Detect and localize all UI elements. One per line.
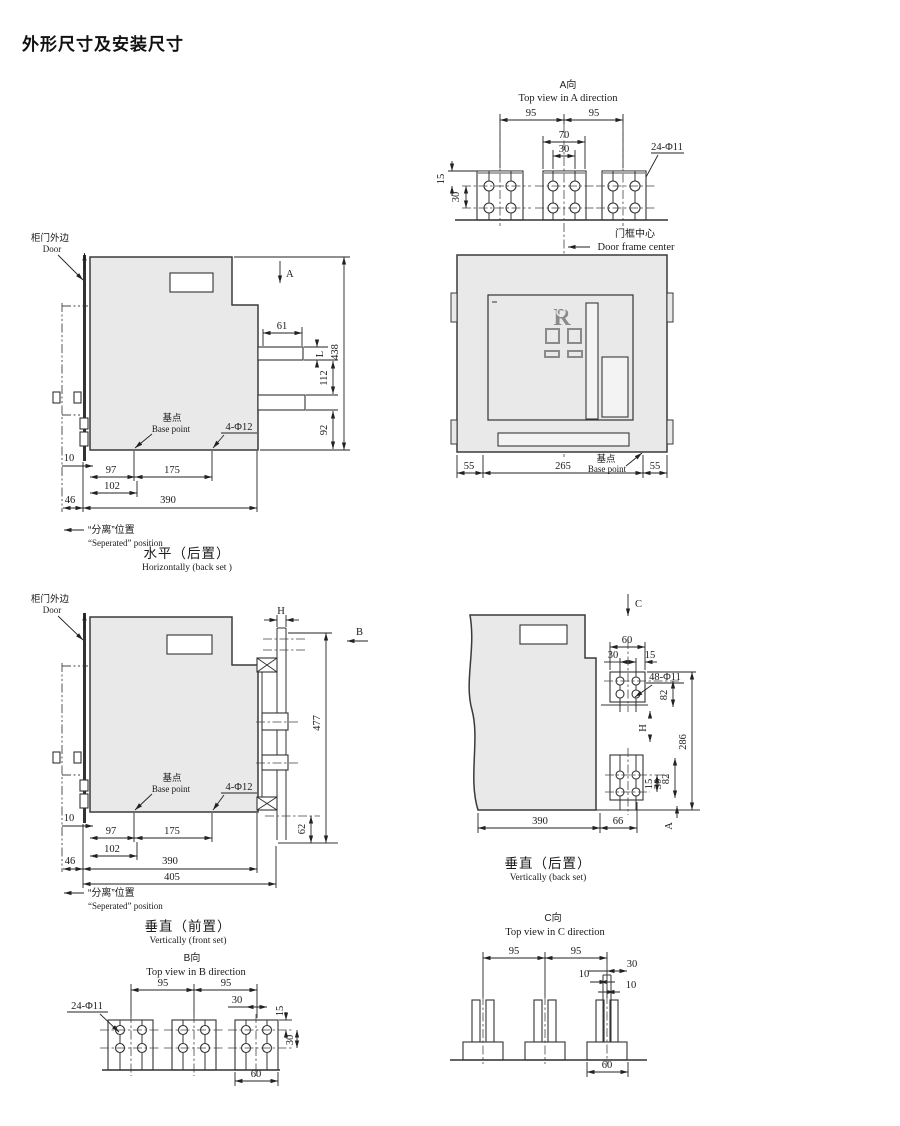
dim-30-rot: 30 <box>285 1035 296 1046</box>
dim-L: L <box>315 351 326 357</box>
side-window <box>520 625 567 644</box>
dim-438: 438 <box>330 344 341 360</box>
door-label-cn: 柜门外边 <box>31 232 70 244</box>
terminal-block-a-right <box>596 171 655 220</box>
dimension-drawing: A向 Top view in A direction 95 95 70 30 2… <box>0 0 900 1126</box>
dim-265: 265 <box>555 461 571 472</box>
base-point-en: Base point <box>152 424 191 434</box>
door-edge-line <box>83 255 86 461</box>
rear-terminal-bottom <box>258 395 305 410</box>
dim-390: 390 <box>162 856 178 867</box>
view-vertical-front: 柜门外边 Door <box>31 593 368 946</box>
vertical-busbar <box>256 628 305 840</box>
separated-position-cn: “分离”位置 <box>88 886 135 899</box>
caption-cn: 垂直（前置） <box>145 918 232 934</box>
hole-callout-24-11: 24-Φ11 <box>71 1001 103 1012</box>
terminal-block-a-left <box>462 171 531 220</box>
dim-30: 30 <box>608 650 619 661</box>
dim-60: 60 <box>251 1069 262 1080</box>
caption-en: Vertically (back set) <box>510 872 587 883</box>
terminal-block-b-right <box>228 1014 292 1076</box>
dim-390: 390 <box>532 816 548 827</box>
dim-10a: 10 <box>579 969 590 980</box>
dim-30-rot: 30 <box>451 192 462 203</box>
dim-55-left: 55 <box>464 461 475 472</box>
dim-60: 60 <box>602 1060 613 1071</box>
base-point-en: Base point <box>152 784 191 794</box>
dim-10: 10 <box>64 453 75 464</box>
dim-405: 405 <box>164 872 180 883</box>
view-top-b: B向 Top view in B direction 95 95 30 15 3… <box>67 951 297 1086</box>
view-b-label-cn: B向 <box>184 951 201 964</box>
dim-112: 112 <box>319 370 330 385</box>
dim-61: 61 <box>277 321 288 332</box>
dim-390: 390 <box>160 495 176 506</box>
terminal-block-b-left <box>100 1014 161 1076</box>
dim-95-left: 95 <box>158 978 169 989</box>
view-c-label-cn: C向 <box>544 911 561 924</box>
dim-15: 15 <box>645 650 656 661</box>
separated-position-cn: “分离”位置 <box>88 523 135 536</box>
dim-175: 175 <box>164 465 180 476</box>
terminal-block-b-mid <box>164 1014 225 1076</box>
hole-callout-4-12: 4-Φ12 <box>226 422 253 433</box>
hole-callout-4-12: 4-Φ12 <box>226 782 253 793</box>
section-arrow-c: C <box>635 599 642 610</box>
caption-cn: 水平（后置） <box>144 546 231 561</box>
dim-66: 66 <box>613 816 624 827</box>
hole-callout-24-11: 24-Φ11 <box>651 142 683 153</box>
dim-97: 97 <box>106 465 117 476</box>
view-top-a: A向 Top view in A direction 95 95 70 30 2… <box>436 78 684 226</box>
view-front: 门框中心 Door frame center R <box>451 227 675 478</box>
dim-95-left: 95 <box>526 108 537 119</box>
dim-95-right: 95 <box>571 946 582 957</box>
hole-callout-48-11: 48-Φ11 <box>649 672 681 683</box>
side-window <box>167 635 212 654</box>
rear-terminal-top <box>258 347 303 360</box>
dim-15-rot: 15 <box>436 174 447 185</box>
dim-95-right: 95 <box>221 978 232 989</box>
view-b-label-en: Top view in B direction <box>146 967 246 978</box>
door-label-cn: 柜门外边 <box>31 593 70 605</box>
dim-10b: 10 <box>626 980 637 991</box>
dim-95-left: 95 <box>509 946 520 957</box>
view-horizontal-back: 柜门外边 Door A 61 438 <box>31 232 350 573</box>
dim-H: H <box>277 606 285 617</box>
section-arrow-b: B <box>356 627 363 638</box>
front-slot-left <box>545 351 559 357</box>
dim-46: 46 <box>65 495 76 506</box>
base-point-en: Base point <box>588 464 627 474</box>
door-label-en: Door <box>43 605 62 615</box>
drawing-page: 外形尺寸及安装尺寸 A向 Top view in A direction 95 … <box>0 0 900 1126</box>
dim-286: 286 <box>678 734 689 750</box>
dim-477: 477 <box>312 715 323 731</box>
dim-60: 60 <box>622 635 633 646</box>
front-button-left <box>546 329 559 343</box>
dim-62: 62 <box>297 824 308 835</box>
door-label-en: Door <box>43 244 62 254</box>
caption-cn: 垂直（后置） <box>505 856 592 871</box>
view-a-label-en: Top view in A direction <box>518 93 618 104</box>
dim-95-right: 95 <box>589 108 600 119</box>
view-vertical-back: C 60 30 15 48-Φ11 <box>469 594 700 883</box>
terminal-block-a-mid <box>535 171 594 220</box>
base-point-cn: 基点 <box>162 772 182 784</box>
section-arrow-a: A <box>286 269 294 280</box>
side-window <box>170 273 213 292</box>
separated-position-en: “Seperated” position <box>88 901 163 911</box>
view-top-c: C向 Top view in C direction 95 95 30 10 1… <box>450 911 647 1077</box>
dim-92: 92 <box>319 425 330 436</box>
view-a-label-cn: A向 <box>560 78 577 91</box>
dim-10: 10 <box>64 813 75 824</box>
dim-82-lower: 82 <box>661 774 672 785</box>
base-point-cn: 基点 <box>162 412 182 424</box>
dim-30: 30 <box>627 959 638 970</box>
door-frame-center-cn: 门框中心 <box>615 227 655 240</box>
dim-82-upper: 82 <box>659 690 670 701</box>
door-frame-center-en: Door frame center <box>598 242 675 253</box>
contact-fork-mid <box>525 996 565 1064</box>
dim-102: 102 <box>104 844 120 855</box>
dim-175: 175 <box>164 826 180 837</box>
front-bottom-rail <box>498 433 629 446</box>
dim-55-right: 55 <box>650 461 661 472</box>
dim-15-rot: 15 <box>275 1006 286 1017</box>
contact-fork-left <box>463 996 503 1064</box>
caption-en: Vertically (front set) <box>149 935 226 946</box>
dim-97: 97 <box>106 826 117 837</box>
caption-en: Horizontally (back set ) <box>142 562 232 573</box>
front-slot-right <box>568 351 582 357</box>
front-button-right <box>568 329 581 343</box>
front-handle-bar <box>586 303 598 419</box>
dim-30: 30 <box>232 995 243 1006</box>
dim-102: 102 <box>104 481 120 492</box>
view-c-label-en: Top view in C direction <box>505 927 605 938</box>
dim-46: 46 <box>65 856 76 867</box>
front-nameplate <box>602 357 628 417</box>
dim-A: A <box>664 822 675 830</box>
dim-H: H <box>638 724 649 732</box>
